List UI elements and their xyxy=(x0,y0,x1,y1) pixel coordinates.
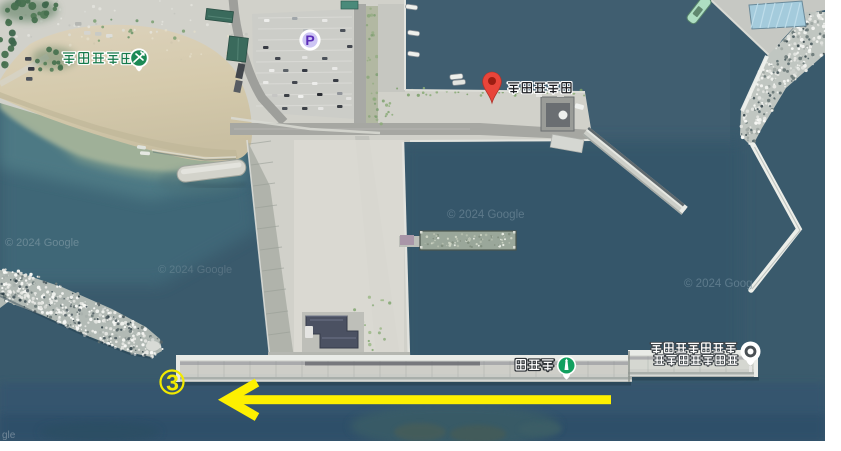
svg-text:© 2024 Google: © 2024 Google xyxy=(447,209,525,221)
svg-text:P: P xyxy=(305,32,314,48)
svg-text:3: 3 xyxy=(166,370,179,396)
svg-text:© 2024 Google: © 2024 Google xyxy=(5,237,79,249)
svg-text:© 2024 Google: © 2024 Google xyxy=(158,264,232,276)
svg-text:© 2024 Goog: © 2024 Goog xyxy=(684,278,753,290)
svg-text:gle: gle xyxy=(2,430,16,441)
